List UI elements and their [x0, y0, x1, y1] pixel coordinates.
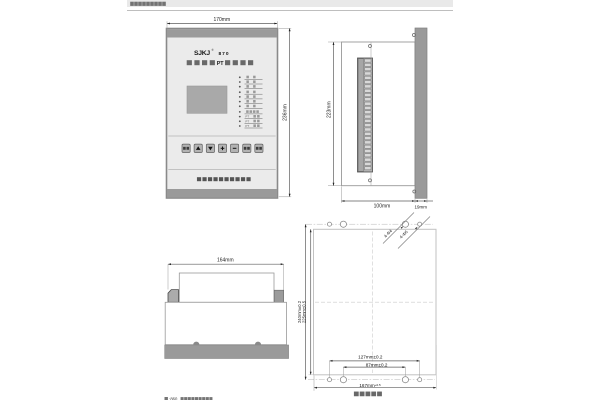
svg-text:19mm: 19mm [415, 205, 428, 210]
svg-text:PT: PT [245, 119, 249, 123]
svg-text:236mm: 236mm [282, 104, 288, 121]
svg-text:100mm: 100mm [374, 203, 391, 209]
svg-text:PT: PT [245, 124, 249, 128]
svg-text:170mm: 170mm [213, 17, 230, 23]
svg-text:127mm±0.2: 127mm±0.2 [358, 354, 383, 359]
svg-text:167mm+0.5: 167mm+0.5 [359, 383, 381, 388]
svg-text:PT: PT [245, 115, 249, 119]
svg-text:223mm: 223mm [327, 101, 333, 118]
svg-text:PT: PT [217, 61, 225, 67]
svg-text:225mm±0.5: 225mm±0.5 [302, 300, 307, 323]
svg-text::860: :860 [169, 396, 178, 400]
svg-text:164mm: 164mm [217, 258, 234, 264]
svg-text:870: 870 [219, 51, 230, 57]
svg-text:SJKJ: SJKJ [194, 50, 210, 57]
